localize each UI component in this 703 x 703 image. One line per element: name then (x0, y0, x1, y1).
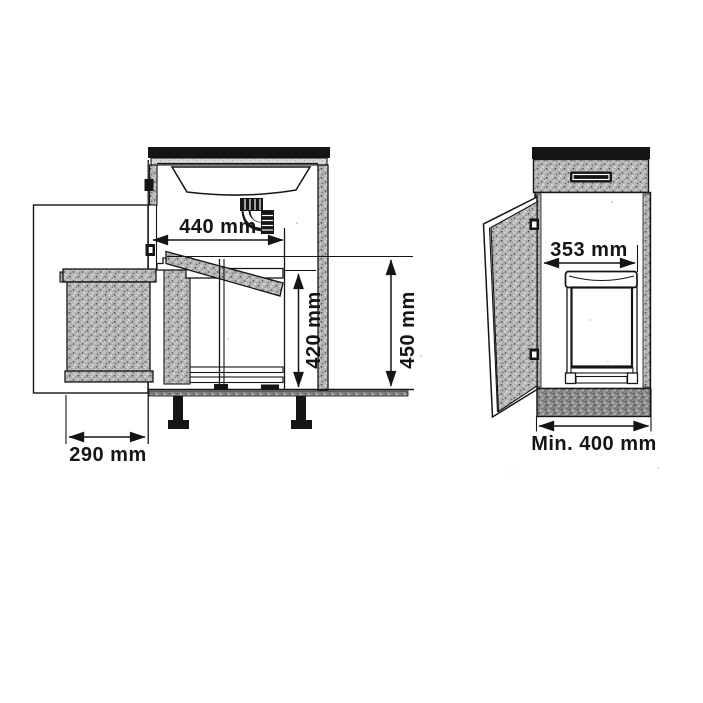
right-side-panel (643, 194, 650, 387)
bin-base-lower-bar (576, 377, 627, 384)
foot-left-base (168, 420, 189, 429)
runner-stop (261, 385, 279, 390)
dim-290: 290 mm (66, 395, 147, 466)
door-hinge-bottom (530, 349, 540, 361)
scanned-diagram-page: 440 mm 420 mm 450 mm 290 mm (0, 0, 703, 703)
pivot-base (214, 384, 228, 390)
bin-body (67, 282, 150, 373)
foot-right-base (291, 420, 312, 429)
plinth (537, 389, 651, 417)
adjustable-feet (168, 396, 312, 429)
bin-foot-left (566, 373, 576, 384)
cabinet-dimension-diagram: 440 mm 420 mm 450 mm 290 mm (0, 0, 703, 703)
dim-label-440: 440 mm (179, 216, 257, 238)
base-panel (149, 391, 408, 396)
bin-lid-front (566, 272, 638, 288)
waste-bin-side (60, 252, 283, 385)
door-panel-section (164, 270, 190, 384)
foot-left-stem (173, 396, 183, 421)
countertop-front (532, 147, 650, 159)
bin-body-front (572, 288, 633, 367)
sink-basin (157, 164, 318, 196)
waste-bin-front (566, 272, 638, 384)
open-door (484, 197, 540, 417)
bin-foot-right (628, 373, 638, 384)
door-hinge-top (530, 219, 540, 231)
bin-bottom-rim (65, 371, 153, 382)
front-view-diagram: 353 mm Min. 400 mm (484, 147, 657, 455)
drawer-front (534, 160, 649, 193)
dim-label-353: 353 mm (550, 239, 628, 261)
countertop (148, 147, 330, 165)
drawer-handle-recess (570, 172, 612, 183)
cabinet-base (148, 390, 414, 397)
hinge-top (145, 179, 154, 191)
dim-label-min-400: Min. 400 mm (531, 433, 657, 455)
sink-bowl (172, 167, 310, 195)
bin-base-bar (571, 368, 633, 373)
dim-label-420: 420 mm (303, 291, 325, 369)
bin-top-rim (63, 269, 156, 282)
countertop-edge (148, 147, 330, 158)
door-face (491, 202, 537, 412)
dim-label-290: 290 mm (69, 444, 147, 466)
dim-label-450: 450 mm (397, 291, 419, 369)
side-view-diagram: 440 mm 420 mm 450 mm 290 mm (34, 147, 420, 466)
foot-right-stem (296, 396, 306, 421)
